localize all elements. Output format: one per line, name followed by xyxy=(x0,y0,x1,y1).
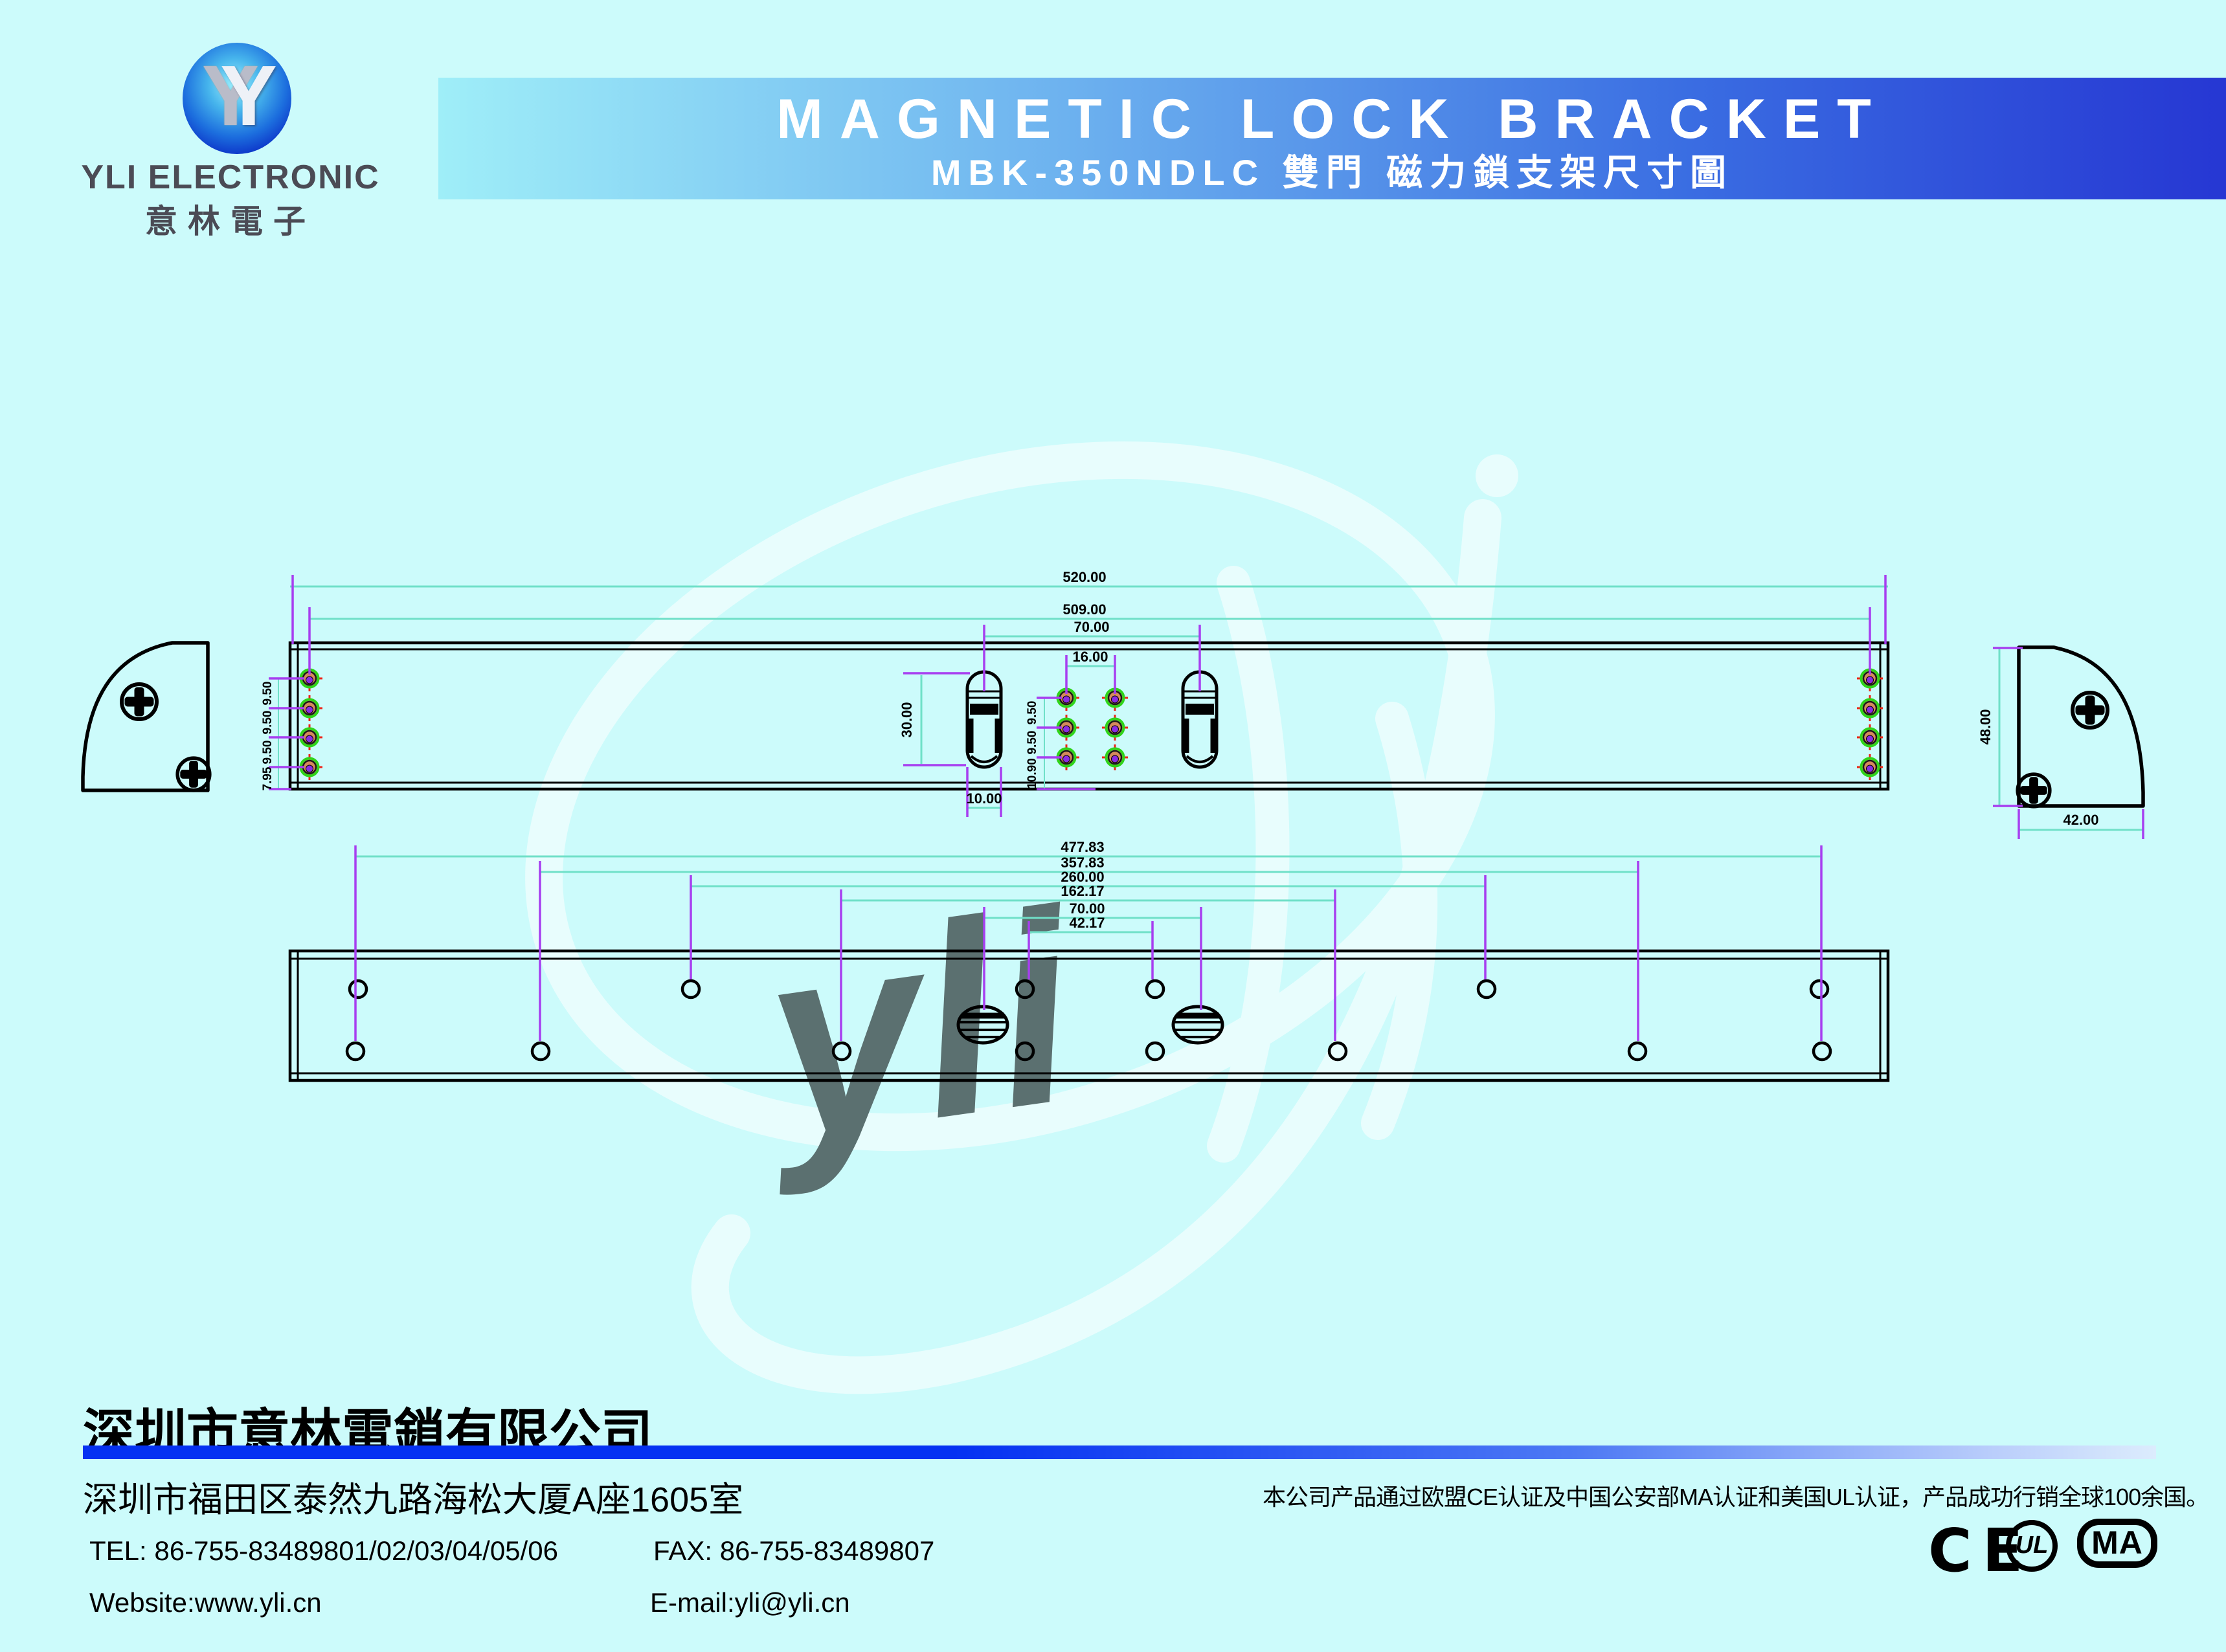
yli-watermark: yli xyxy=(456,346,1564,1375)
ul-mark-icon: UL ® xyxy=(2006,1520,2058,1572)
dim-front-hole-span: 509.00 xyxy=(1062,601,1106,618)
dim-front-length: 520.00 xyxy=(1062,569,1106,585)
front-mount-holes xyxy=(297,665,1883,780)
left-side-view xyxy=(83,643,210,790)
dim-left-spacing-3: 9.50 xyxy=(261,741,275,765)
screw-icon xyxy=(2018,774,2050,807)
side-view-dimensions: 48.00 42.00 xyxy=(1977,648,2143,839)
ma-mark-icon: MA xyxy=(2077,1519,2157,1568)
dim-side-height: 48.00 xyxy=(1977,709,1994,744)
footer-email[interactable]: E-mail:yli@yli.cn xyxy=(650,1587,850,1618)
screw-icon xyxy=(177,758,210,790)
footer-address: 深圳市福田区泰然九路海松大厦A座1605室 xyxy=(83,1471,743,1522)
dim-front-slot-height: 30.00 xyxy=(899,702,915,737)
watermark-text: yli xyxy=(737,854,1096,1200)
right-side-view xyxy=(2018,647,2143,807)
bottom-view xyxy=(290,951,1888,1080)
bottom-holes-bottom-row xyxy=(347,1043,1830,1060)
footer-divider-bar xyxy=(83,1445,2156,1459)
screw-icon xyxy=(2073,693,2108,728)
screw-icon xyxy=(122,684,157,719)
footer-website[interactable]: Website:www.yli.cn xyxy=(89,1587,322,1618)
bottom-body-outline xyxy=(290,951,1888,1080)
footer-fax: FAX: 86-755-83489807 xyxy=(653,1535,934,1567)
dim-left-spacing-2: 9.50 xyxy=(261,711,275,735)
dim-bottom-4: 162.17 xyxy=(1061,883,1104,899)
footer-cert-note: 本公司产品通过欧盟CE认证及中国公安部MA认证和美国UL认证，产品成功行销全球1… xyxy=(1263,1479,2169,1512)
dim-bottom-1: 477.83 xyxy=(1061,839,1104,855)
dim-left-spacing-4: 7.95 xyxy=(261,766,275,790)
dim-mid-spacing-1: 9.50 xyxy=(1026,701,1039,725)
bottom-threaded-slot xyxy=(1173,1007,1222,1043)
dim-mid-spacing-2: 9.50 xyxy=(1026,731,1039,755)
dim-mid-spacing-3: 10.90 xyxy=(1026,758,1039,789)
footer-tel: TEL: 86-755-83489801/02/03/04/05/06 xyxy=(89,1535,558,1567)
dim-side-depth: 42.00 xyxy=(2063,812,2098,828)
dim-bottom-6: 42.17 xyxy=(1069,915,1105,931)
registered-icon: ® xyxy=(2012,1559,2020,1570)
dim-left-spacing-1: 9.50 xyxy=(261,682,275,706)
dim-front-slot-width: 10.00 xyxy=(966,790,1002,807)
dim-front-slot-span: 70.00 xyxy=(1074,619,1109,635)
dim-front-hole-pair: 16.00 xyxy=(1072,649,1108,665)
ma-mark-letters: MA xyxy=(2084,1525,2151,1560)
